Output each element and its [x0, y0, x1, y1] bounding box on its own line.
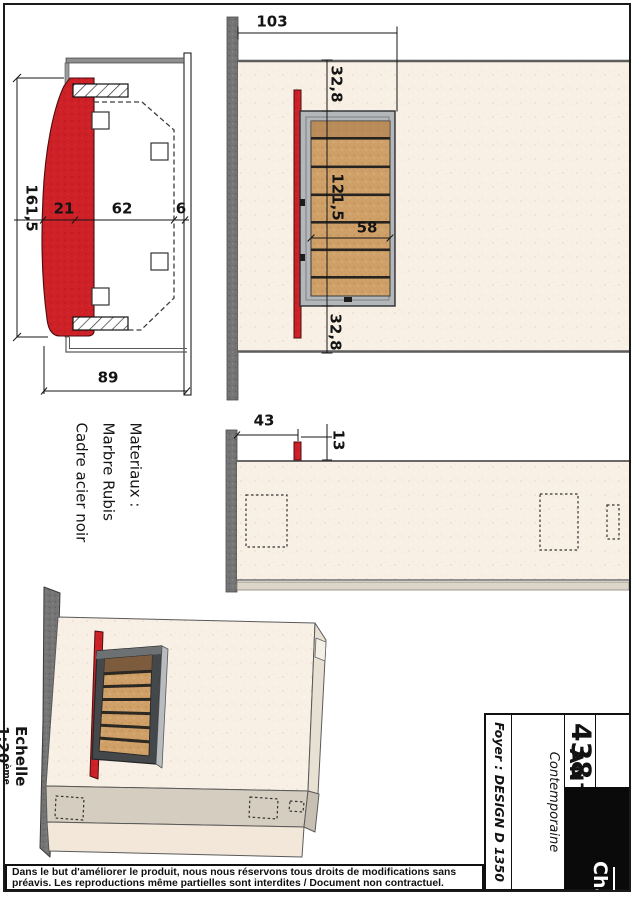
dim-side-marble-depth: 21 [54, 202, 75, 217]
firebox-interior [311, 121, 390, 296]
dim-side-height: 161,5 [24, 184, 39, 231]
wall-section [227, 17, 238, 400]
dim-plan-marble-to-panel: 13 [331, 430, 346, 451]
dim-side-gap: 6 [176, 202, 186, 217]
dim-front-bottom-margin: 32,8 [328, 313, 343, 350]
dim-front-insert-height: 121,5 [330, 173, 345, 220]
dim-side-insert-depth: 62 [112, 202, 133, 217]
plan-dimension-lines [234, 424, 332, 460]
brand-logo-box: Chazelles [565, 787, 629, 889]
title-block: Foyer : DESIGN D 1350 ANTALYA Contempora… [484, 713, 631, 891]
model-range: Contemporaine [543, 718, 563, 886]
title-cell-insert-ref: Foyer : DESIGN D 1350 [486, 715, 512, 889]
marble-edge-plan [294, 442, 301, 460]
materials-frame: Cadre acier noir [68, 423, 95, 548]
dim-front-insert-width: 58 [357, 221, 378, 236]
materials-note: Materiaux : Marbre Rubis Cadre acier noi… [65, 423, 149, 548]
scale-sup: ème [1, 763, 11, 785]
drawing-sheet: 103 32,8 121,5 58 32,8 161,5 21 62 6 89 … [0, 0, 638, 900]
perspective-view [40, 587, 326, 857]
disclaimer-box: Dans le but d'améliorer le produit, nous… [5, 864, 484, 891]
logo-line [613, 867, 615, 900]
scale-note: Echelle 1:20ème [8, 726, 30, 850]
insert-ref-label: Foyer : DESIGN D 1350 [487, 718, 511, 886]
bench-front-3d [47, 822, 304, 857]
steel-beam-top [73, 84, 128, 97]
plan-view [226, 424, 629, 592]
materials-title: Materiaux : [122, 423, 149, 548]
title-cell-plan-number: 438 [565, 715, 595, 787]
panel-3d [46, 617, 315, 791]
dim-front-top-margin: 32,8 [329, 65, 344, 102]
bench-top-3d [46, 786, 308, 827]
materials-marble: Marbre Rubis [95, 423, 122, 548]
marble-panel-plan [237, 460, 629, 580]
plan-number: 438 [565, 716, 595, 786]
steel-beam-bottom [73, 317, 128, 330]
brand-name: Chazelles [589, 861, 611, 900]
title-cell-date: 11/03/2009 [595, 715, 629, 787]
wall-edge [184, 53, 191, 395]
wall-plan [226, 430, 237, 592]
dim-front-offset: 103 [256, 15, 287, 30]
dim-side-total-depth: 89 [98, 371, 119, 386]
front-elevation-view [227, 17, 629, 400]
title-cell-model: ANTALYA Contemporaine [512, 715, 565, 889]
dim-plan-wall-to-marble: 43 [254, 414, 275, 429]
